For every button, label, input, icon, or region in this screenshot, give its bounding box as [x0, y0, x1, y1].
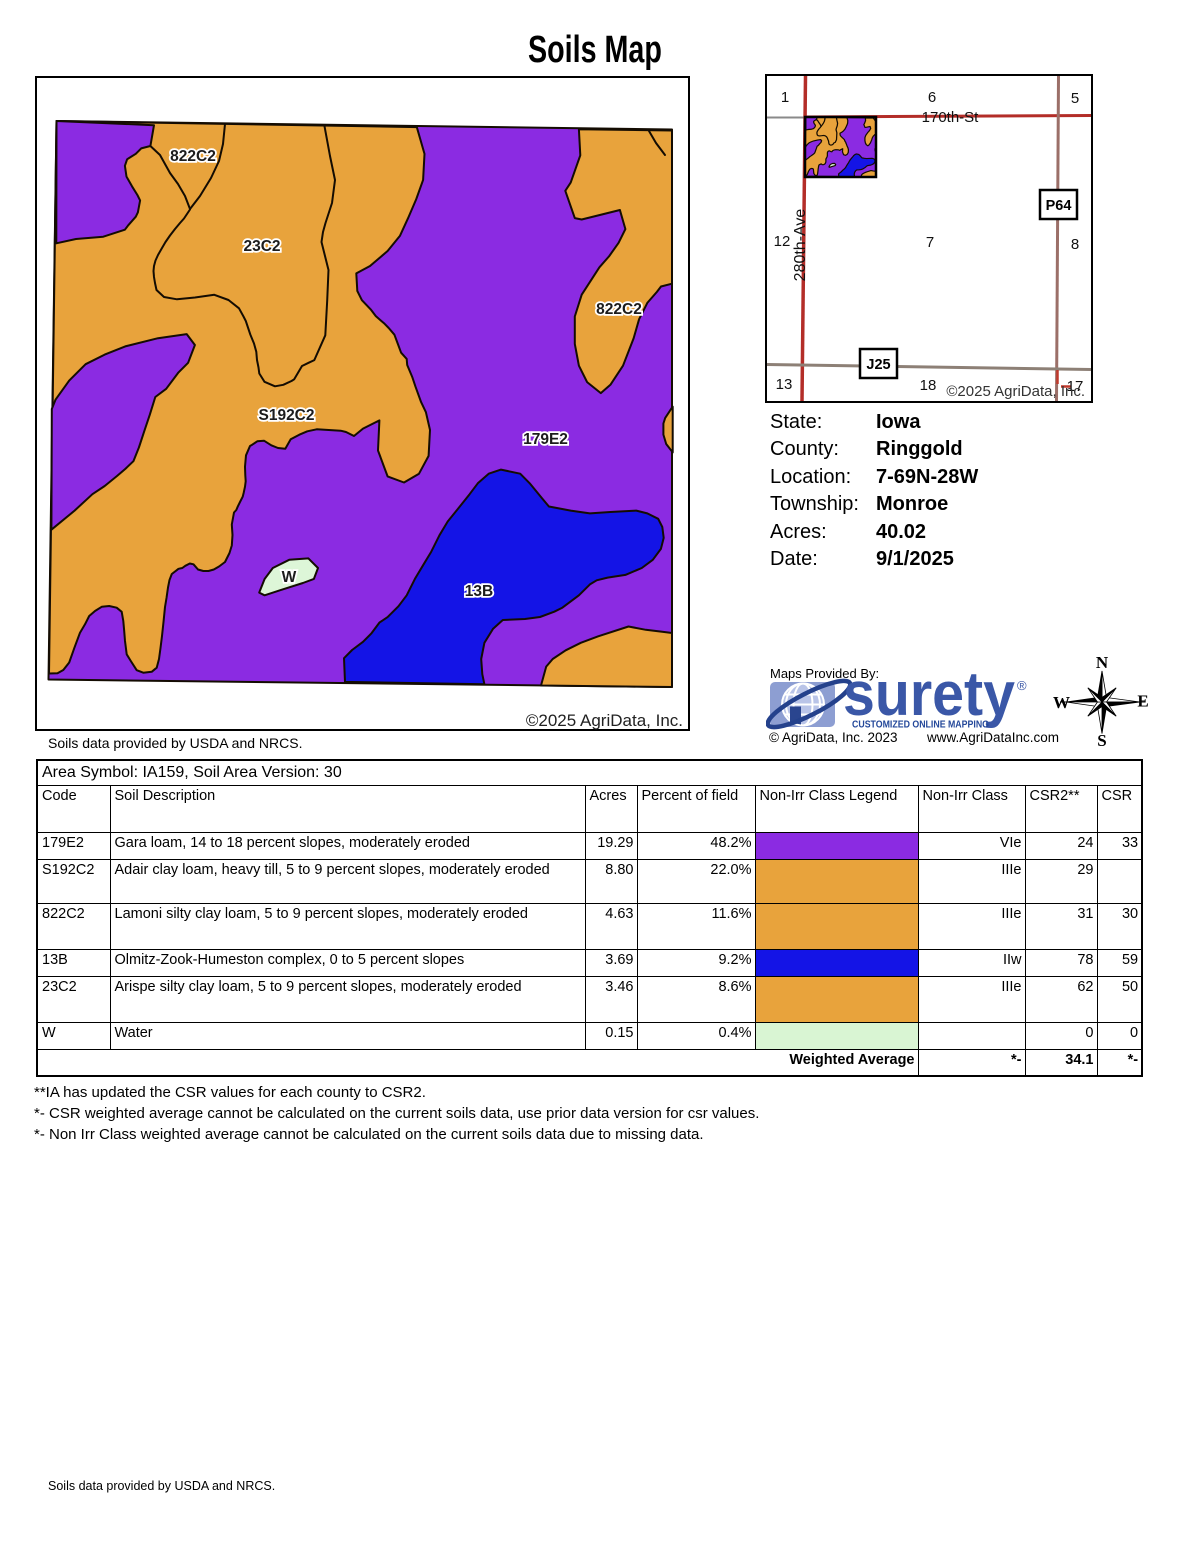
svg-text:S192C2: S192C2	[258, 407, 314, 424]
svg-text:18: 18	[920, 377, 937, 394]
svg-text:5: 5	[1071, 90, 1079, 107]
svg-text:8: 8	[1071, 236, 1079, 253]
svg-text:®: ®	[1017, 678, 1027, 693]
svg-text:12: 12	[774, 233, 791, 250]
svg-text:E: E	[1137, 692, 1148, 711]
svg-text:W: W	[282, 569, 297, 586]
svg-text:23C2: 23C2	[243, 238, 280, 255]
svg-text:1: 1	[781, 89, 789, 106]
svg-text:822C2: 822C2	[596, 301, 642, 318]
svg-text:6: 6	[928, 89, 936, 106]
svg-text:N: N	[1096, 653, 1109, 672]
svg-text:280th-Ave: 280th-Ave	[792, 209, 809, 282]
svg-text:S: S	[1097, 731, 1106, 750]
svg-text:J25: J25	[866, 357, 890, 373]
svg-text:179E2: 179E2	[523, 431, 568, 448]
svg-text:7: 7	[926, 234, 934, 251]
svg-text:©2025 AgriData, Inc.: ©2025 AgriData, Inc.	[946, 383, 1085, 400]
svg-text:W: W	[1053, 693, 1070, 712]
svg-text:13B: 13B	[465, 583, 493, 600]
svg-text:CUSTOMIZED ONLINE MAPPING: CUSTOMIZED ONLINE MAPPING	[852, 720, 989, 731]
svg-text:170th-St: 170th-St	[922, 109, 980, 126]
svg-text:13: 13	[776, 376, 793, 393]
svg-text:P64: P64	[1046, 198, 1072, 214]
svg-text:822C2: 822C2	[170, 148, 216, 165]
